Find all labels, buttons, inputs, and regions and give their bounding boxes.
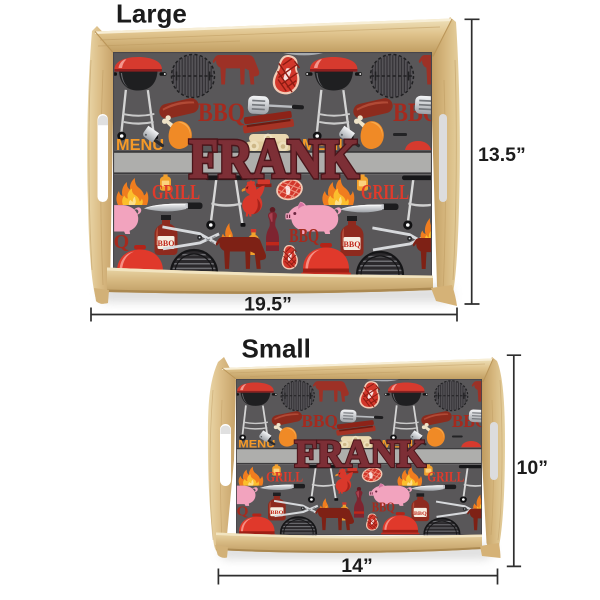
- svg-text:Large: Large: [116, 0, 187, 29]
- svg-text:13.5”: 13.5”: [478, 144, 526, 166]
- svg-text:10”: 10”: [517, 457, 548, 479]
- svg-text:14”: 14”: [341, 555, 372, 577]
- svg-text:19.5”: 19.5”: [244, 294, 292, 316]
- svg-text:Small: Small: [242, 334, 311, 364]
